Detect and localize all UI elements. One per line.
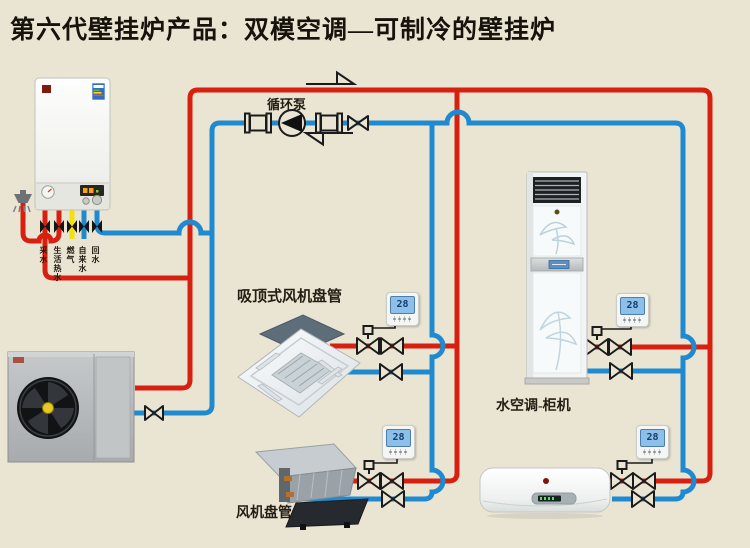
motorized-valve-icon [586,339,608,355]
mid-cold-riser-pipe [292,123,443,499]
boiler-heating-supply-pipe [45,210,190,278]
boiler-display [80,185,104,196]
heat-pump-outdoor-unit [8,352,134,462]
valve-icon [609,339,631,355]
heat-pump-logo-icon [13,357,24,363]
fancoil-label: 风机盘管 [236,502,292,522]
valve-icon [381,473,403,489]
wall-hung-boiler-unit [35,78,110,210]
flow-arrow-right-icon [306,73,354,85]
cabinet-label: 水空调-柜机 [496,395,571,415]
wall-unit-logo-icon [543,478,549,484]
boiler-knob [83,198,89,204]
motorized-valve-icon [357,338,379,354]
valve-icon [381,338,403,354]
diagram-canvas: 第六代壁挂炉产品：双模空调—可制冷的壁挂炉 循环泵 吸顶式风机盘管 水空调-柜机… [0,0,750,548]
thermostat-buttons [392,316,413,322]
motorized-valve-icon [358,473,380,489]
cabinet-logo-icon [555,210,560,215]
thermostat-buttons [388,449,409,455]
circulation-pump-icon [279,110,305,136]
pump-label: 循环泵 [267,94,306,113]
boiler-logo-icon [42,85,51,93]
actuator-icon [365,461,374,474]
motorized-valve-icon [611,473,633,489]
valve-icon [348,116,368,130]
flange-icon [316,114,342,133]
hot-supply-main-pipe [135,90,710,481]
cassette-thermostat: 28 [386,292,419,326]
floor-cabinet-ac-unit [525,172,589,384]
valve-icon [633,473,655,489]
valve-icon [382,491,404,507]
wallunit-thermostat: 28 [636,425,669,459]
ceiling-cassette-unit [238,315,360,417]
thermostat-lcd: 28 [640,429,665,447]
fan-icon [17,377,79,439]
boiler-knob [92,195,101,204]
boiler-return-pipe [97,210,212,233]
boiler-gauge-icon [42,186,54,198]
boiler-port-label-return: 回水 [91,246,100,264]
energy-label-icon [92,83,105,100]
piping-diagram-svg [0,0,750,548]
actuator-icon [593,327,602,340]
flow-direction-arrows [306,73,354,145]
actuator-icon [364,326,373,339]
page-title: 第六代壁挂炉产品：双模空调—可制冷的壁挂炉 [10,10,556,46]
valve-icon [380,364,402,380]
thermostat-lcd: 28 [390,296,415,314]
actuator-icon [618,461,627,474]
fancoil-thermostat: 28 [382,425,415,459]
cassette-label: 吸顶式风机盘管 [237,285,342,306]
boiler-port-label-heating-supply: 采水 [39,246,48,264]
flow-arrow-left-icon [306,133,353,145]
valve-icon [632,491,654,507]
valve-icon [145,406,163,420]
cabinet-thermostat: 28 [616,293,649,327]
thermostat-lcd: 28 [620,297,645,315]
boiler-port-label-dhw: 生活热水 [53,246,62,282]
wall-mounted-ac-unit [480,468,610,519]
thermostat-lcd: 28 [386,429,411,447]
thermostat-buttons [622,317,643,323]
boiler-port-label-tap-water: 自来水 [78,246,87,273]
boiler-port-label-gas: 燃气 [66,246,75,264]
wall-unit-display [532,493,576,504]
valve-icon [610,363,632,379]
flange-icon [245,114,271,133]
thermostat-buttons [642,449,663,455]
